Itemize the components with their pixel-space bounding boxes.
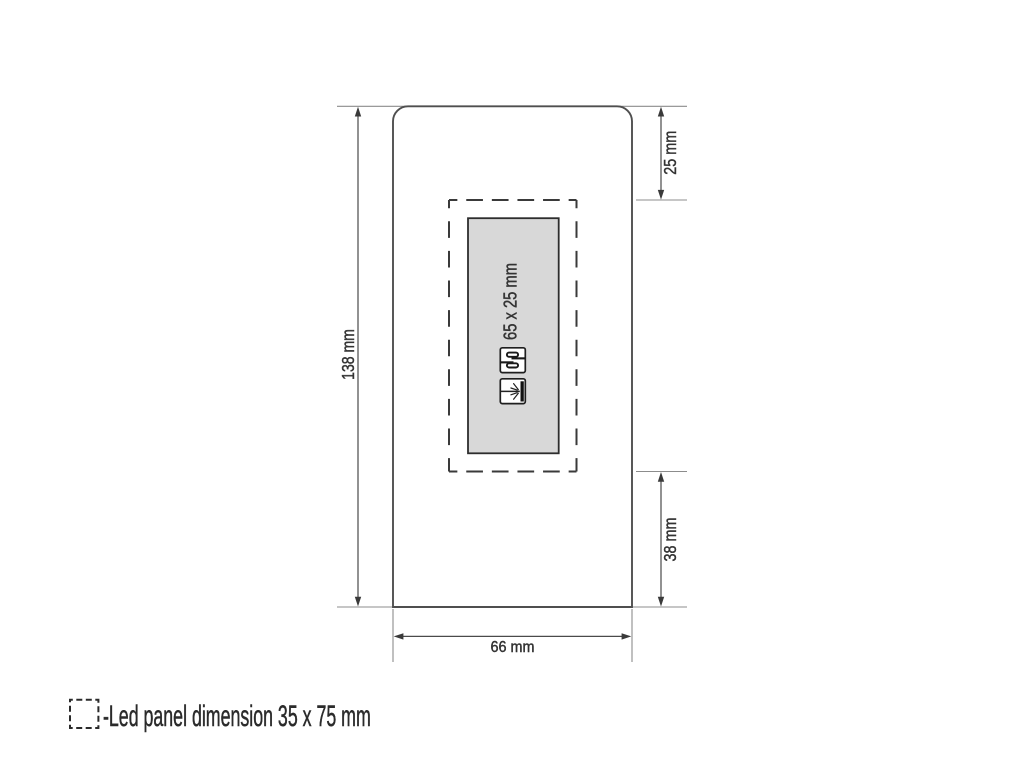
svg-text:66 mm: 66 mm [490,638,534,656]
svg-text:38 mm: 38 mm [661,518,681,562]
svg-text:-Led panel dimension 35 x 75 m: -Led panel dimension 35 x 75 mm [103,700,371,733]
svg-text:65 x 25 mm: 65 x 25 mm [501,263,521,340]
svg-text:138 mm: 138 mm [338,329,358,380]
svg-text:25 mm: 25 mm [661,131,681,175]
